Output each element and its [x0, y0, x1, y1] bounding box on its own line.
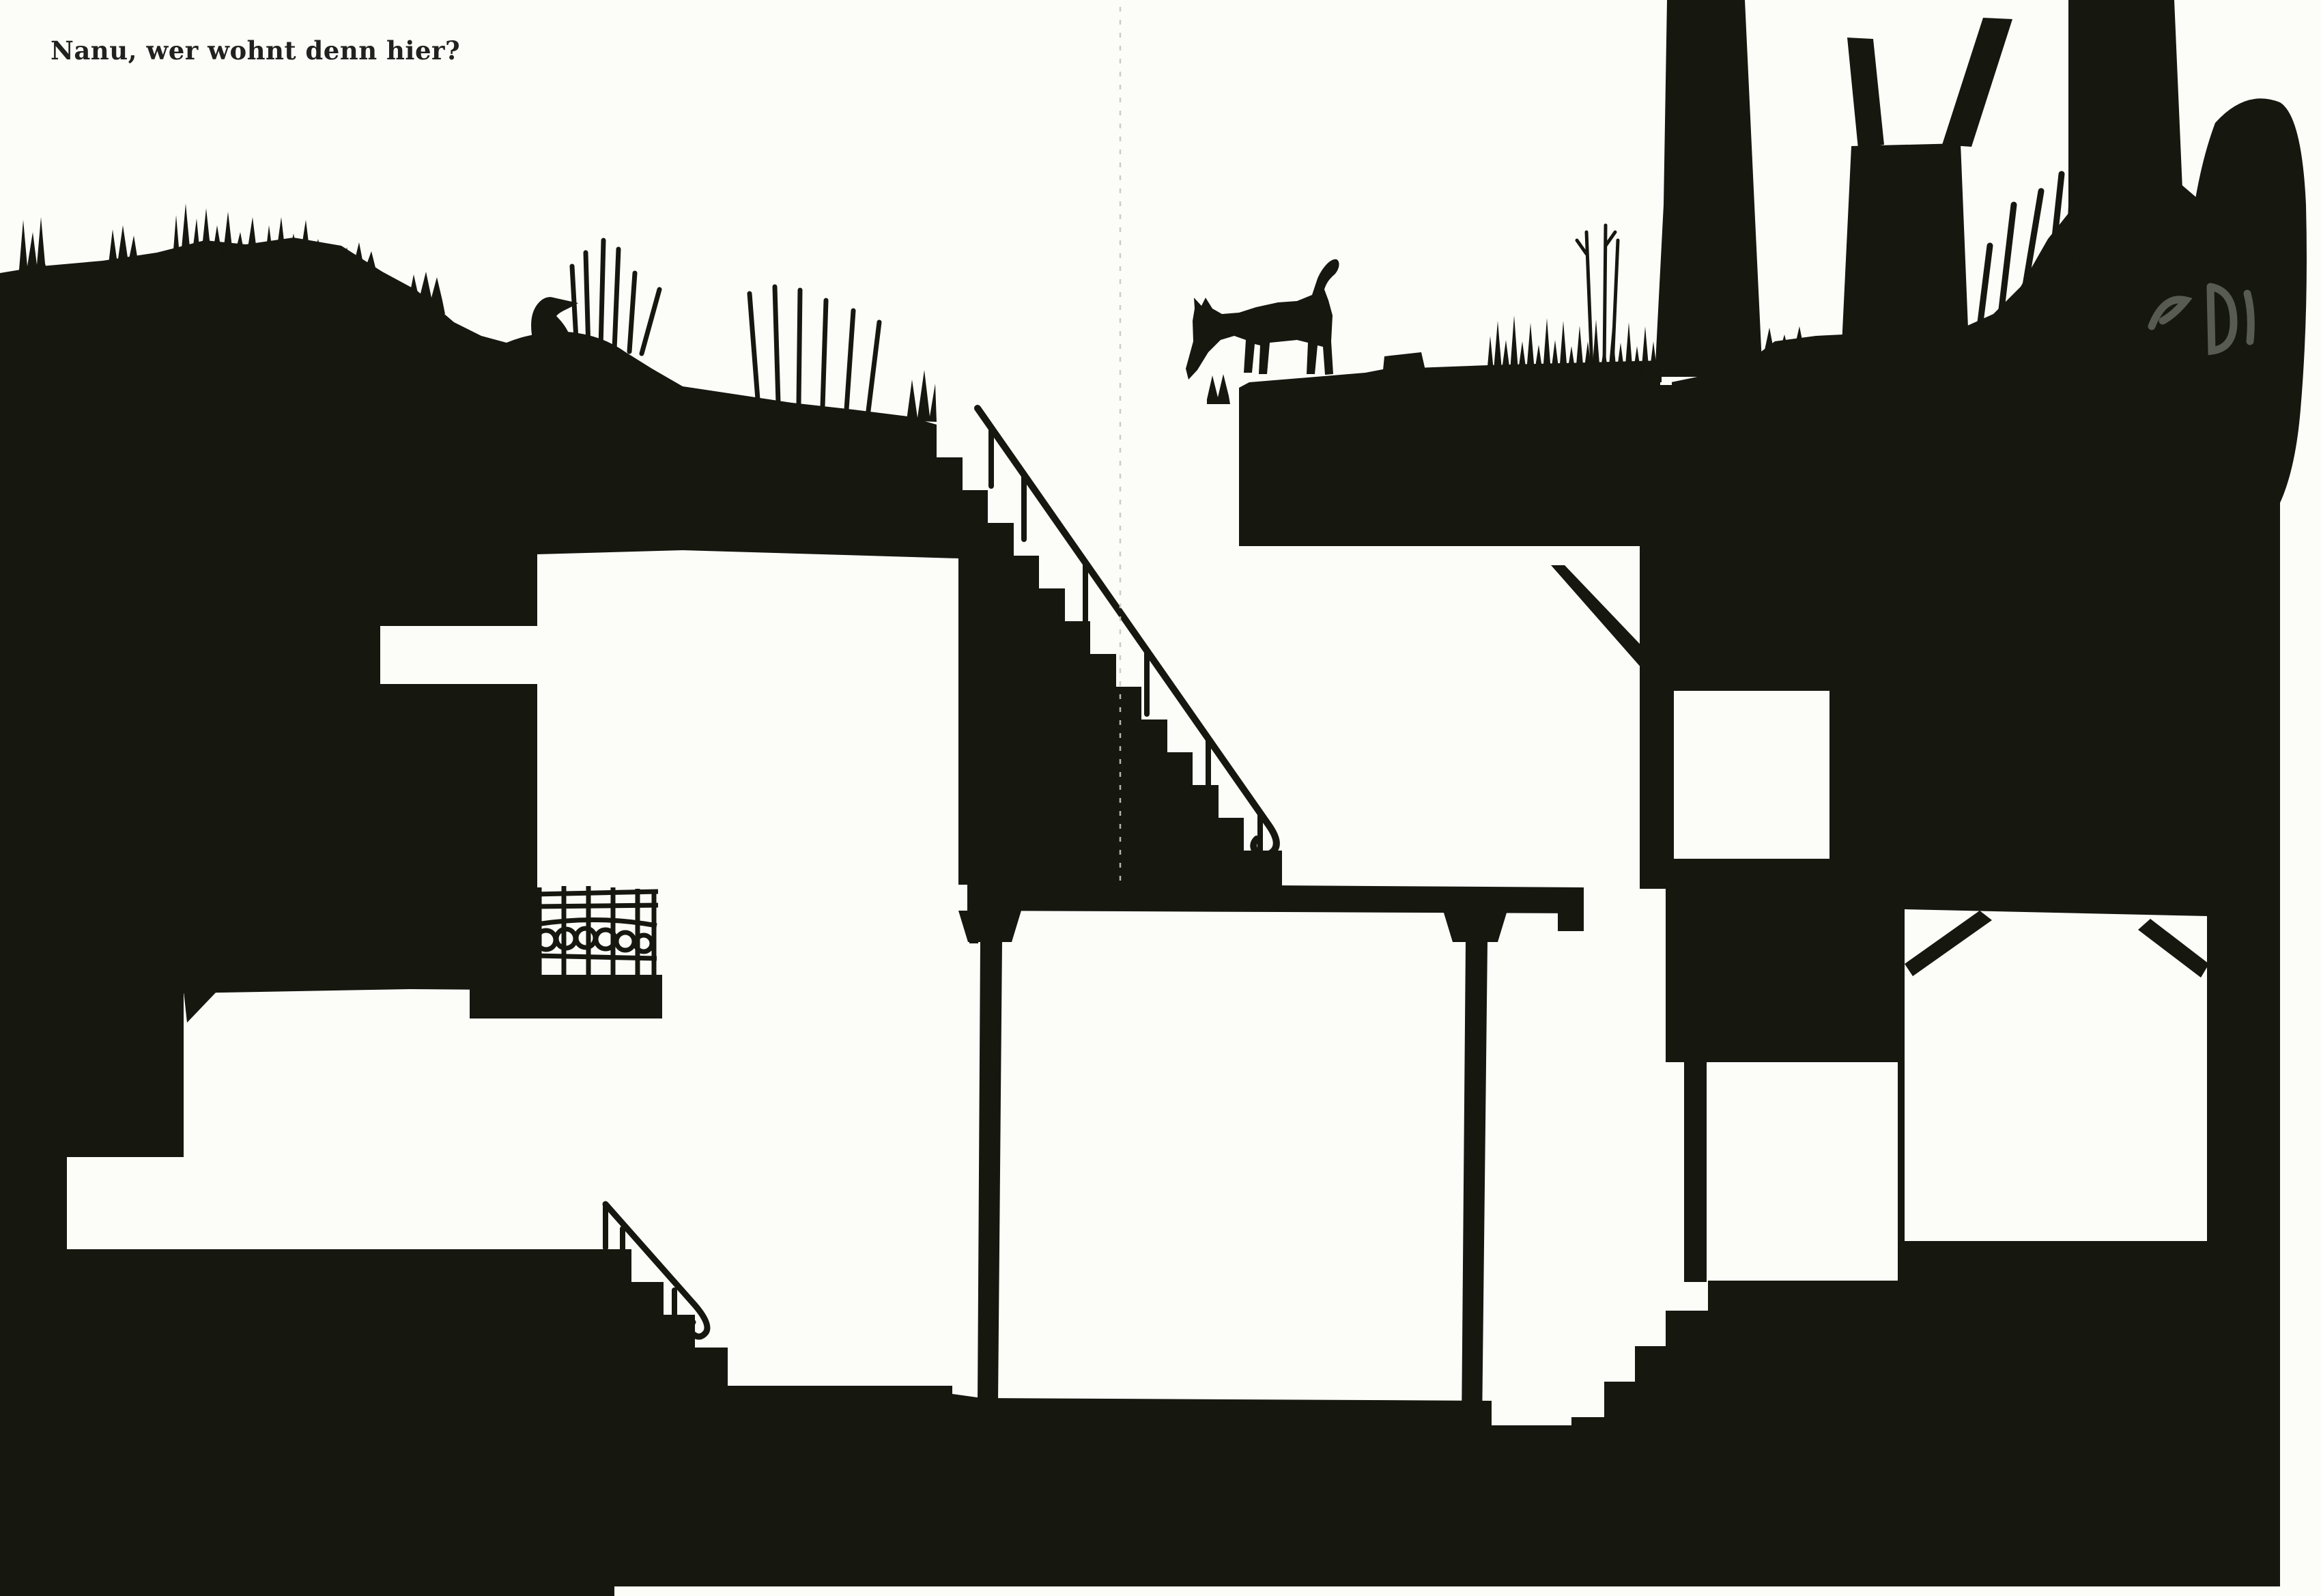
dense-ledge-grass	[1487, 315, 1662, 382]
stone-block	[1382, 352, 1428, 384]
grass-cluster-far-left	[19, 217, 48, 274]
silhouette-illustration	[0, 0, 2321, 1596]
shrub-dip	[408, 272, 445, 314]
ledge-corner-tuft	[1207, 374, 1230, 404]
slot-window	[380, 626, 539, 684]
grass-cluster-left-2	[108, 225, 139, 273]
left-capital	[958, 911, 1021, 942]
bottom-scan-strip	[614, 1586, 2321, 1596]
beam-end-block	[1558, 912, 1584, 931]
slope-reeds	[750, 287, 879, 411]
balcony-ledge	[470, 975, 662, 1018]
hanging-post	[1684, 1059, 1707, 1282]
tree-trunk-forked-branch	[1942, 18, 2012, 147]
left-column	[978, 942, 1002, 1403]
book-page: Nanu, wer wohnt denn hier?	[0, 0, 2321, 1596]
ceiling-beam	[967, 883, 1584, 913]
tree-trunk-forked-base	[1842, 143, 1969, 345]
right-room	[1905, 909, 2207, 1241]
upper-left-room	[537, 550, 969, 993]
grass-cluster-left-3	[172, 203, 259, 273]
right-center-room	[1674, 691, 1829, 859]
tree-trunk-forked	[1847, 38, 1884, 149]
dog	[1186, 259, 1339, 380]
stairtop-tuft	[907, 370, 937, 422]
central-room	[952, 909, 1492, 1401]
grass-cluster-left-5	[341, 242, 378, 281]
right-capital	[1443, 911, 1507, 942]
tree-trunk-left	[1655, 0, 1763, 377]
